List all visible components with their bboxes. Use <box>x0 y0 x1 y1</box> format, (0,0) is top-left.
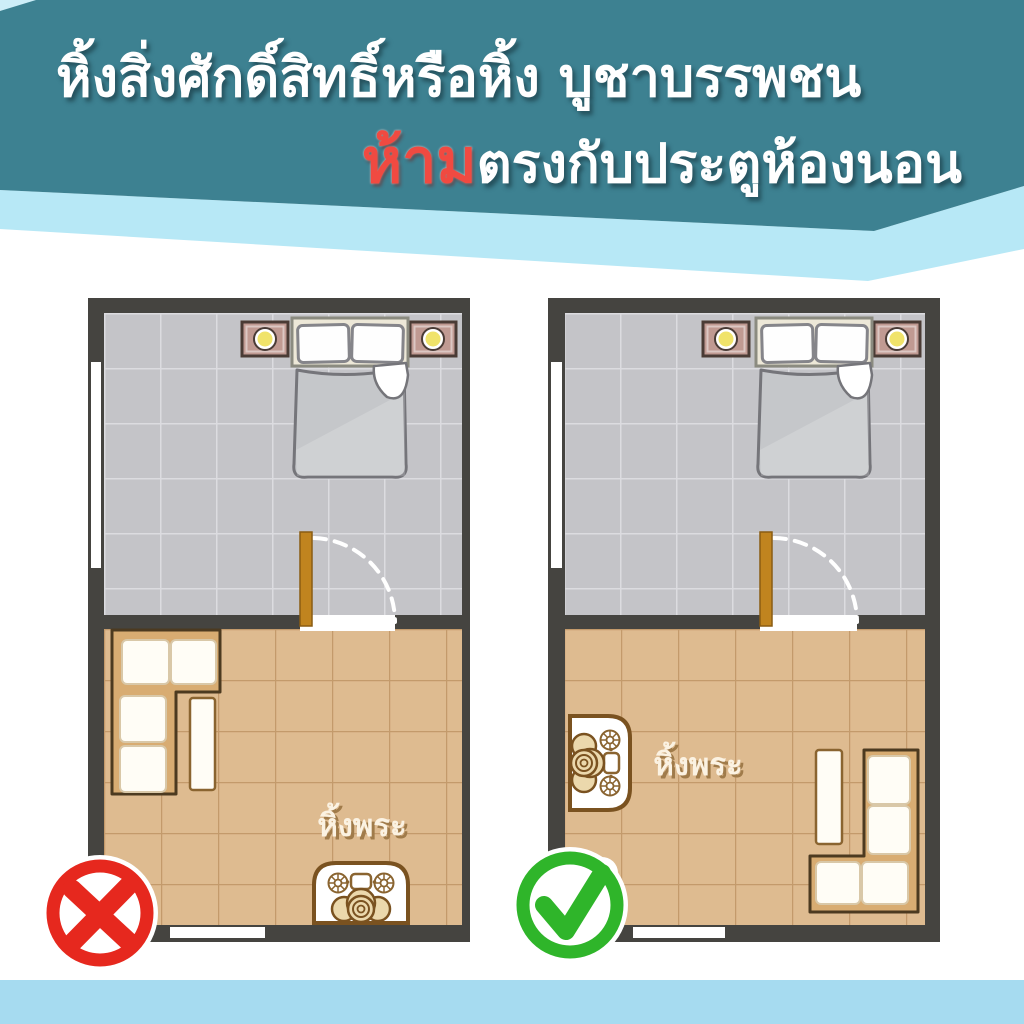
door-threshold <box>760 615 857 631</box>
window-bottom-wall <box>633 927 725 938</box>
title-line2-rest: ตรงกับประตูห้องนอน <box>477 132 962 195</box>
title-line2: ห้ามตรงกับประตูห้องนอน <box>362 112 962 209</box>
title-line1: หิ้งสิ่งศักดิ์สิทธิ์หรือหิ้ง บูชาบรรพชน <box>56 34 861 120</box>
nightstand-icon <box>410 322 456 356</box>
infographic-canvas: หิ้งสิ่งศักดิ์สิทธิ์หรือหิ้ง บูชาบรรพชน … <box>0 0 1024 1024</box>
shrine-label: หิ้งพระ หิ้งพระ <box>317 802 409 847</box>
bed-icon <box>292 318 408 477</box>
nightstand-icon <box>703 322 749 356</box>
shrine-icon <box>570 716 630 810</box>
coffee-table-icon <box>816 750 842 844</box>
floorplan-wrong: หิ้งพระ หิ้งพระ <box>88 298 470 942</box>
divider-wall-left <box>104 615 300 629</box>
check-icon <box>506 841 634 969</box>
nightstand-icon <box>242 322 288 356</box>
x-icon <box>36 849 164 977</box>
divider-wall-right <box>395 615 462 629</box>
door-threshold <box>300 615 395 631</box>
divider-wall-left <box>565 615 760 629</box>
shrine-label: หิ้งพระ หิ้งพระ <box>653 741 745 786</box>
coffee-table-icon <box>190 698 215 790</box>
correct-badge <box>506 841 634 969</box>
window-bottom-wall <box>170 927 265 938</box>
shrine-icon <box>314 863 408 923</box>
window-left-wall <box>551 362 562 568</box>
svg-text:หิ้งพระ: หิ้งพระ <box>653 741 742 783</box>
footer-band <box>0 980 1024 1024</box>
door-icon <box>760 532 772 626</box>
title-line2-highlight: ห้าม <box>362 126 477 197</box>
bed-icon <box>756 318 872 477</box>
svg-text:หิ้งพระ: หิ้งพระ <box>317 802 406 844</box>
nightstand-icon <box>874 322 920 356</box>
window-left-wall <box>91 362 101 568</box>
wrong-badge <box>36 849 164 977</box>
divider-wall-right <box>857 615 925 629</box>
door-icon <box>300 532 312 626</box>
